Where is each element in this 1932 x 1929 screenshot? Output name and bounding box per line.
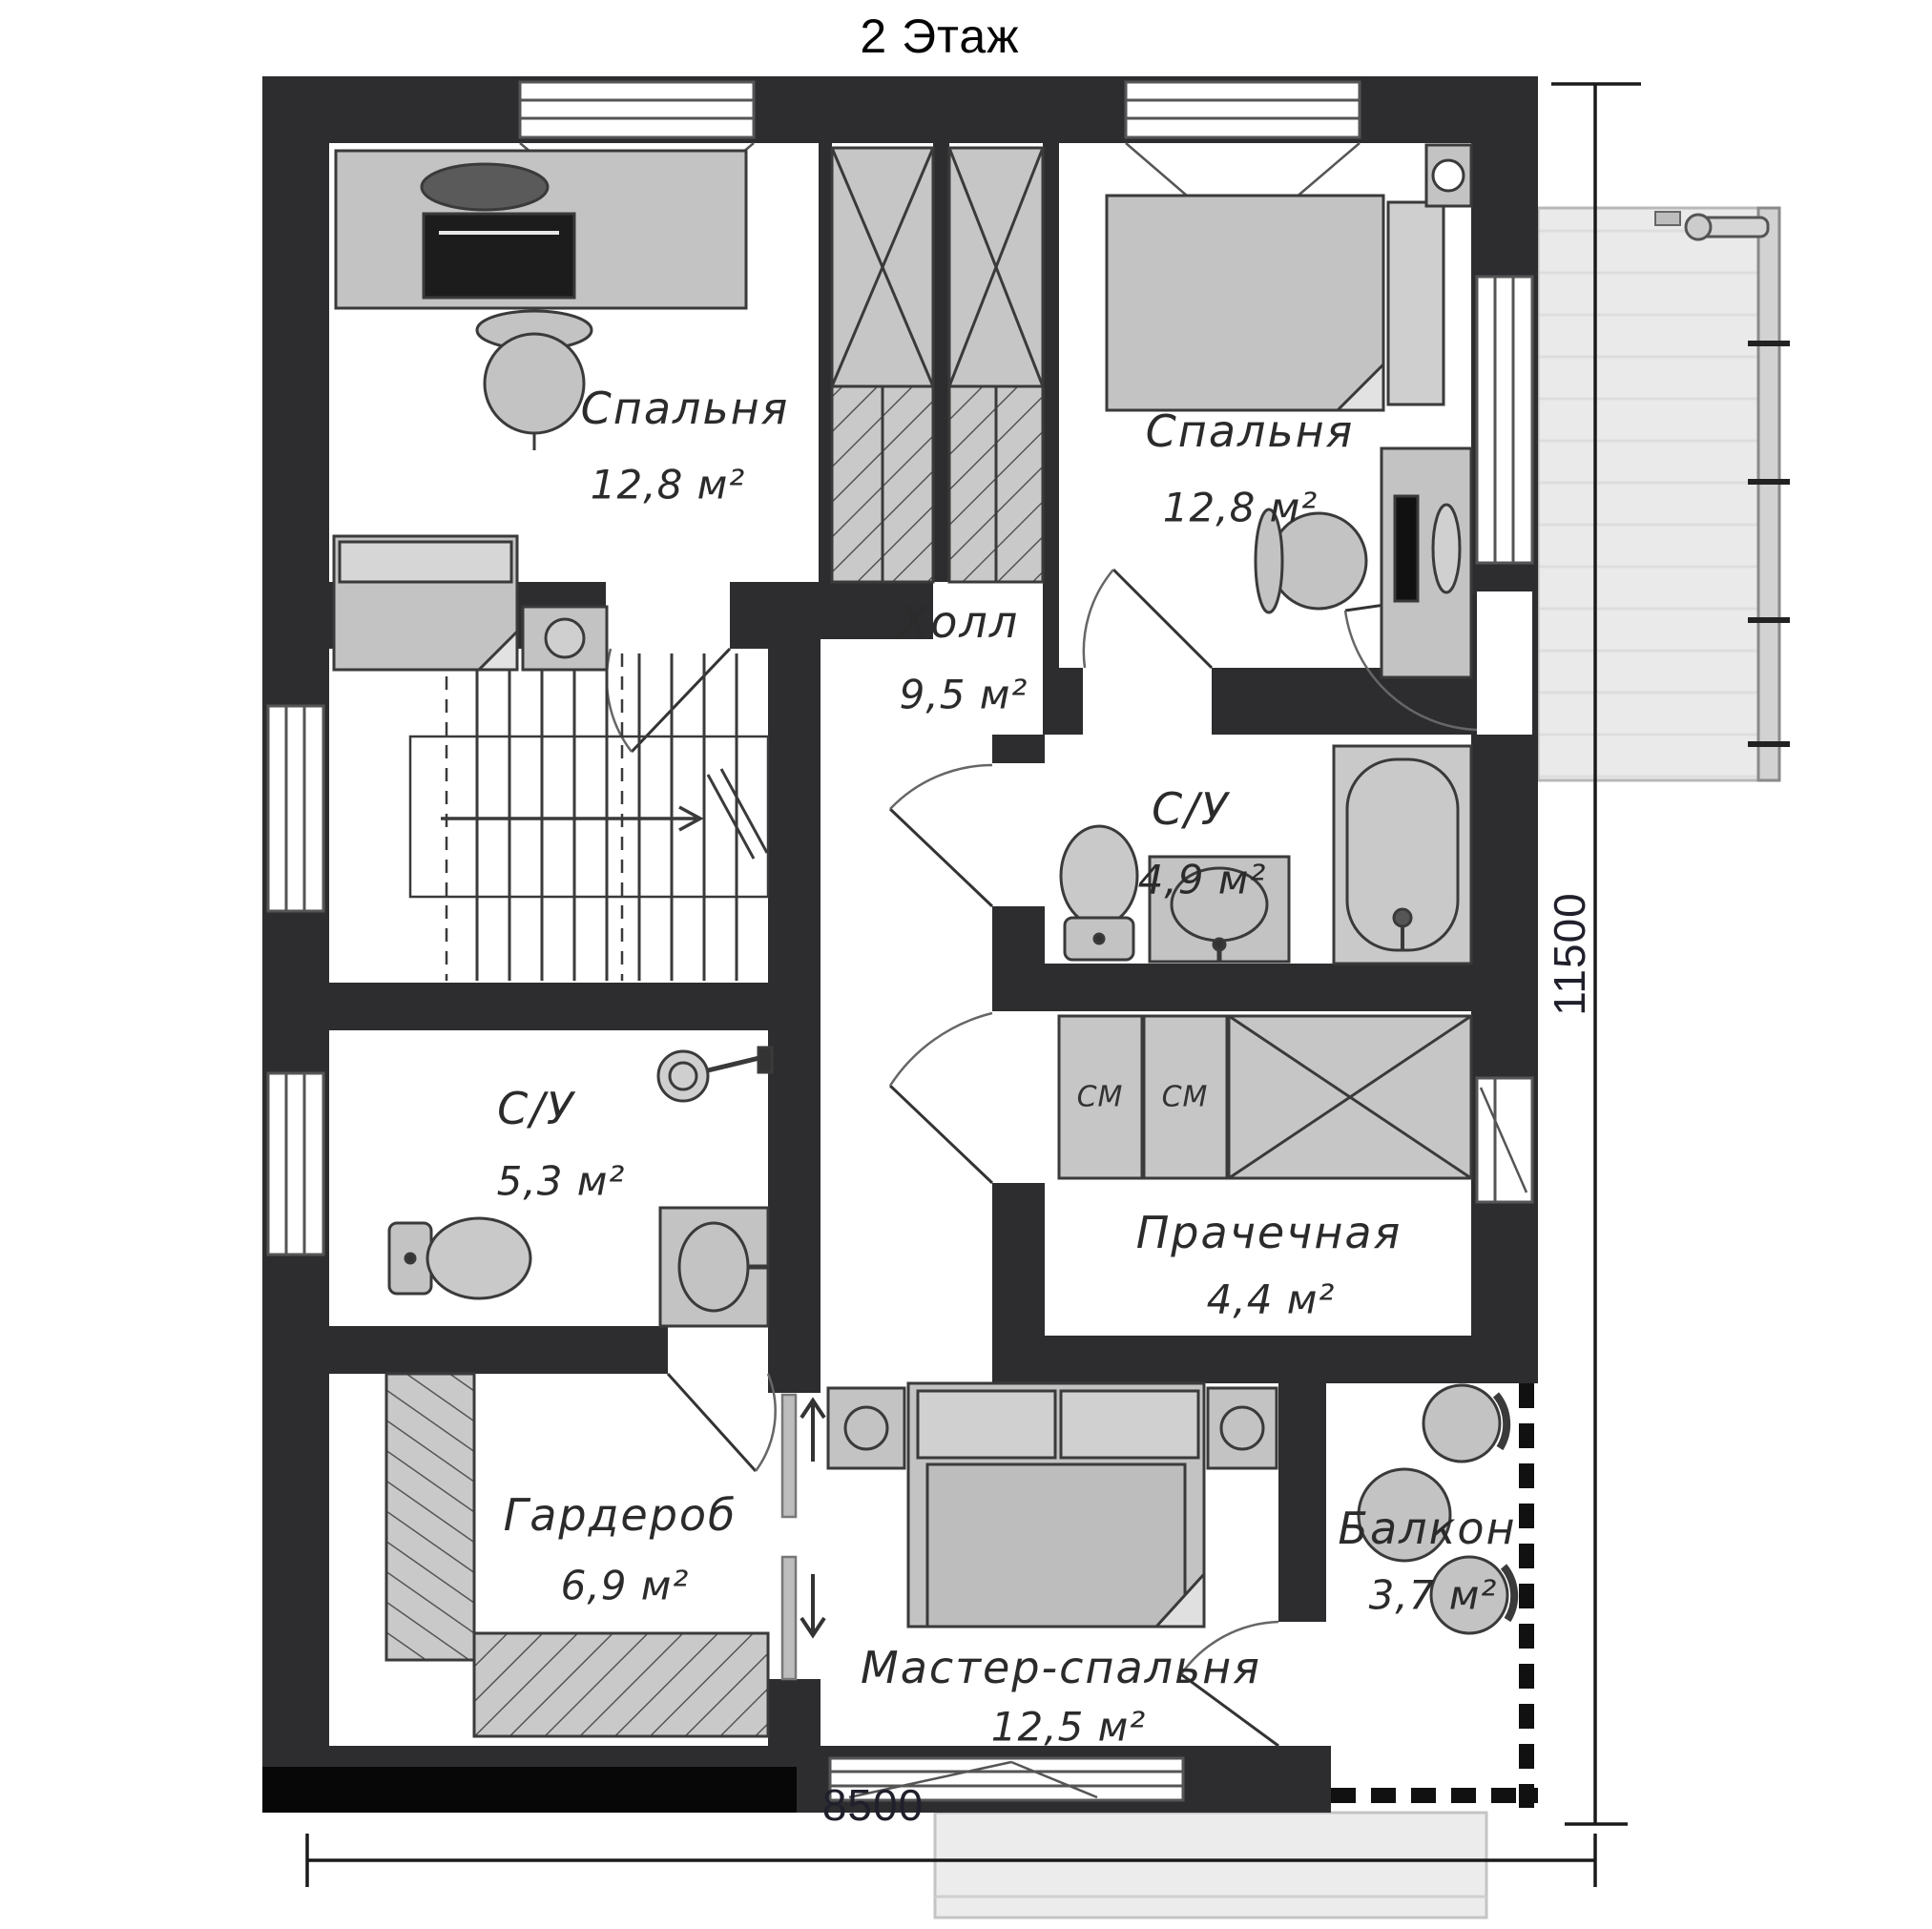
- window-stairs-left: [268, 706, 323, 911]
- room-label-bathroom-1-area: 4,9 м²: [1138, 857, 1267, 903]
- door-bathroom1: [890, 765, 992, 906]
- bed-single-icon: [1107, 196, 1444, 410]
- fixtures-bathroom-1: [1061, 746, 1471, 964]
- wardrobe-shelving: [386, 1374, 768, 1736]
- room-label-balcony-name: Балкон: [1338, 1503, 1516, 1554]
- nightstand-icon: [1426, 145, 1471, 206]
- floor-plan-drawing: [0, 0, 1932, 1929]
- nightstand-icon: [523, 607, 607, 670]
- room-label-master-area: 12,5 м²: [991, 1704, 1146, 1751]
- arrow-up-icon: [801, 1400, 824, 1462]
- furniture-master-bedroom: [828, 1383, 1277, 1627]
- room-label-master-name: Мастер-спальня: [861, 1642, 1261, 1693]
- arrow-down-icon: [801, 1574, 824, 1635]
- balcony-chair-icon: [1423, 1385, 1506, 1462]
- nightstand-icon: [828, 1388, 904, 1468]
- door-bedroom2: [1084, 570, 1212, 668]
- room-label-bathroom-2-area: 5,3 м²: [497, 1158, 626, 1205]
- dimension-width-label: 8500: [822, 1779, 924, 1831]
- floor-plan-page: 2 Этаж: [0, 0, 1932, 1929]
- terrace-roof: [1538, 208, 1790, 780]
- bed-single-icon: [334, 536, 517, 670]
- bathtub-icon: [1334, 746, 1471, 964]
- office-chair-icon: [477, 311, 592, 450]
- door-laundry: [890, 1013, 992, 1183]
- room-label-laundry-name: Прачечная: [1136, 1207, 1402, 1258]
- terrace-bottom: [935, 1813, 1486, 1918]
- room-label-bedroom-2-area: 12,8 м²: [1163, 485, 1318, 531]
- bed-double-icon: [908, 1383, 1204, 1627]
- desk-icon: [1381, 448, 1471, 677]
- washer-label-1: СМ: [1077, 1081, 1124, 1114]
- nightstand-icon: [1208, 1388, 1277, 1468]
- room-label-hall-name: Холл: [899, 596, 1019, 648]
- sink-vanity-icon: [660, 1208, 768, 1326]
- room-label-bedroom-2-name: Спальня: [1146, 405, 1355, 457]
- stairs: [410, 653, 768, 981]
- dimension-height-label: 11500: [1544, 892, 1595, 1016]
- room-label-wardrobe-area: 6,9 м²: [561, 1563, 690, 1609]
- room-label-bathroom-1-name: С/У: [1152, 783, 1230, 835]
- room-label-wardrobe-name: Гардероб: [504, 1489, 737, 1541]
- room-label-balcony-area: 3,7 м²: [1369, 1572, 1498, 1619]
- shower-icon: [658, 1047, 772, 1101]
- window-laundry-right: [1477, 1078, 1532, 1202]
- pocket-door-wardrobe: [782, 1395, 796, 1679]
- washer-label-2: СМ: [1162, 1081, 1209, 1114]
- door-bathroom2-wardrobe: [668, 1374, 776, 1471]
- room-label-bathroom-2-name: С/У: [497, 1083, 575, 1134]
- room-label-hall-area: 9,5 м²: [900, 672, 1028, 718]
- window-bathroom2-left: [268, 1073, 323, 1255]
- toilet-icon: [1061, 826, 1137, 960]
- stairs-direction-arrow: [441, 807, 700, 830]
- room-label-bedroom-1-area: 12,8 м²: [591, 462, 745, 508]
- window-bedroom2-right: [1477, 277, 1532, 563]
- room-label-bedroom-1-name: Спальня: [581, 383, 790, 434]
- toilet-icon: [389, 1218, 530, 1298]
- room-label-laundry-area: 4,4 м²: [1207, 1276, 1336, 1323]
